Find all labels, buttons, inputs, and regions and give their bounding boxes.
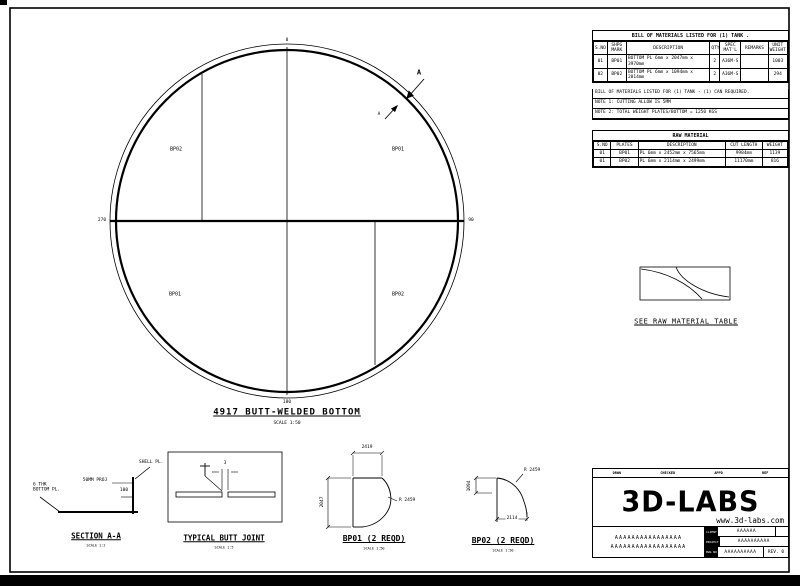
revision-badge: REV. 0 (763, 547, 788, 557)
title-block-approvals: DRWN CHECKED APPD REF (593, 469, 788, 478)
bom-cell: 1003 (768, 55, 787, 68)
field-row: DWG NO AAAAAAAAAA REV. 0 (705, 547, 788, 557)
bp02-title: BP02 (2 REQD) (472, 537, 535, 545)
bom-note: NOTE 2: TOTAL WEIGHT PLATES/BOTTOM = 125… (593, 109, 788, 119)
compass-label-90: 90 (468, 219, 473, 224)
dim-100: 100 (120, 489, 128, 494)
raw-cell: 11170mm (725, 158, 762, 166)
company-website: www.3d-labs.com (716, 516, 784, 525)
bom-note: NOTE 1: CUTTING ALLOW IS 5MM (593, 99, 788, 109)
title-block: DRWN CHECKED APPD REF 3D-LABS www.3d-lab… (592, 468, 789, 558)
bp01-scale: SCALE 1:50 (363, 547, 384, 551)
bp01-radius-dim: R 2459 (399, 499, 415, 504)
bottom-plate-label: 6 THK BOTTOM PL. (33, 483, 60, 494)
approval-label: CHECKED (660, 471, 675, 475)
field-value: AAAAAA (718, 527, 775, 536)
section-letter: A (378, 113, 381, 118)
bom-cell: 294 (768, 68, 787, 81)
title-block-fields: CLIENT AAAAAA PROJECT AAAAAAAAAA DWG NO … (705, 527, 788, 557)
section-aa-title: SECTION A-A (71, 532, 121, 540)
bp02-width-dim: 2114 (506, 517, 519, 522)
raw-cell: BP01 (611, 150, 638, 158)
raw-row: 01 BP01 PL 6mm x 2452mm x 7565mm 9984mm … (594, 150, 788, 158)
butt-joint-title: TYPICAL BUTT JOINT (183, 534, 264, 542)
field-label: PROJECT (705, 537, 720, 546)
bom-header: QTY (710, 42, 720, 55)
raw-cell: BP02 (611, 158, 638, 166)
bom-header-row: S.NO SHPG MARK DESCRIPTION QTY SPEC MAT'… (594, 42, 788, 55)
bp01-title: BP01 (2 REQD) (343, 535, 406, 543)
drawing-description: AAAAAAAAAAAAAAAA AAAAAAAAAAAAAAAAAA (593, 527, 705, 557)
raw-cell: PL 6mm x 2114mm x 2499mm (638, 158, 725, 166)
compass-label-0: 0 (286, 39, 289, 44)
bom-header: REMARKS (741, 42, 768, 55)
field-value: AAAAAAAAAA (720, 537, 788, 546)
drawing-sheet: 0 90 180 270 BP02 BP01 BP01 BP02 A A 491… (0, 0, 800, 586)
bom-table: S.NO SHPG MARK DESCRIPTION QTY SPEC MAT'… (593, 41, 788, 82)
bom-cell (741, 68, 768, 81)
plan-title: 4917 BUTT-WELDED BOTTOM (213, 409, 361, 418)
raw-cell: 01 (594, 150, 611, 158)
plan-scale: SCALE 1:50 (273, 422, 300, 427)
bp01-width-dim: 2419 (362, 446, 373, 451)
raw-material-table: S.NO PLATES DESCRIPTION CUT LENGTH WEIGH… (593, 141, 788, 167)
raw-header: CUT LENGTH (725, 142, 762, 150)
raw-header: S.NO (594, 142, 611, 150)
bom-note: BILL OF MATERIALS LISTED FOR (1) TANK - … (593, 89, 788, 99)
bom-cell: 01 (594, 55, 608, 68)
raw-material-caption: SEE RAW MATERIAL TABLE (634, 319, 738, 326)
approval-label: REF (762, 471, 768, 475)
company-logo: 3D-LABS (621, 486, 759, 519)
bom-cell: 2 (710, 55, 720, 68)
plate-label: BP02 (392, 293, 404, 298)
raw-cell: PL 6mm x 2452mm x 7565mm (638, 150, 725, 158)
compass-label-180: 180 (283, 401, 291, 406)
approval-label: DRWN (613, 471, 621, 475)
raw-row: 01 BP02 PL 6mm x 2114mm x 2499mm 11170mm… (594, 158, 788, 166)
title-block-bottom: AAAAAAAAAAAAAAAA AAAAAAAAAAAAAAAAAA CLIE… (593, 527, 788, 557)
plate-label: BP02 (170, 148, 182, 153)
butt-joint-scale: SCALE 1:5 (215, 546, 234, 550)
bom-table-panel: BILL OF MATERIALS LISTED FOR (1) TANK . … (592, 30, 789, 83)
bom-cell: A36M-S (720, 55, 741, 68)
bom-title: BILL OF MATERIALS LISTED FOR (1) TANK . (593, 31, 788, 41)
raw-header: WEIGHT (762, 142, 787, 150)
bom-cell: BOTTOM PL 6mm x 2047mm x 3970mm (626, 55, 709, 68)
bom-row: 02 BP02 BOTTOM PL 6mm x 1094mm x 2014mm … (594, 68, 788, 81)
bom-row: 01 BP01 BOTTOM PL 6mm x 2047mm x 3970mm … (594, 55, 788, 68)
bom-cell: BOTTOM PL 6mm x 1094mm x 2014mm (626, 68, 709, 81)
raw-material-panel: RAW MATERIAL S.NO PLATES DESCRIPTION CUT… (592, 130, 789, 168)
bp01-linework (326, 451, 397, 529)
bom-cell: 02 (594, 68, 608, 81)
raw-cell: 816 (762, 158, 787, 166)
bp02-linework (474, 474, 529, 522)
bom-header: SHPG MARK (607, 42, 626, 55)
field-row: CLIENT AAAAAA (705, 527, 788, 537)
bom-cell: BP02 (607, 68, 626, 81)
field-row: PROJECT AAAAAAAAAA (705, 537, 788, 547)
raw-header-row: S.NO PLATES DESCRIPTION CUT LENGTH WEIGH… (594, 142, 788, 150)
field-value: AAAAAAAAAA (718, 547, 763, 557)
bom-cell: A36M-S (720, 68, 741, 81)
bom-header: DESCRIPTION (626, 42, 709, 55)
raw-header: PLATES (611, 142, 638, 150)
bom-header: UNIT WEIGHT (768, 42, 787, 55)
bottom-edge-bar (0, 575, 800, 586)
field-label: DWG NO (705, 547, 718, 557)
gap-dim: 3 (224, 462, 227, 467)
raw-material-sketch (640, 267, 730, 300)
bp02-radius-dim: R 2459 (524, 469, 540, 474)
bom-header: SPEC MAT'L (720, 42, 741, 55)
bp01-height-dim: 2047 (321, 497, 326, 508)
raw-cell: 1139 (762, 150, 787, 158)
raw-cell: 9984mm (725, 150, 762, 158)
field-label: CLIENT (705, 527, 718, 536)
plate-label: BP01 (392, 148, 404, 153)
projection-label: 50MM PROJ (83, 479, 107, 484)
raw-cell: 01 (594, 158, 611, 166)
bp02-height-dim: 1094 (468, 481, 473, 492)
title-block-logo-area: 3D-LABS www.3d-labs.com (593, 478, 788, 527)
bom-cell (741, 55, 768, 68)
bom-cell: BP01 (607, 55, 626, 68)
corner-mark (0, 0, 7, 5)
plate-label: BP01 (169, 293, 181, 298)
approval-label: APPD (714, 471, 722, 475)
description-line: AAAAAAAAAAAAAAAAAA (611, 544, 687, 550)
section-letter: A (417, 70, 421, 77)
bp02-scale: SCALE 1:50 (492, 549, 513, 553)
shell-plate-label: SHELL PL. (139, 461, 163, 466)
bom-cell: 2 (710, 68, 720, 81)
compass-label-270: 270 (98, 219, 106, 224)
plan-linework (110, 44, 464, 398)
raw-header: DESCRIPTION (638, 142, 725, 150)
bom-notes-panel: BILL OF MATERIALS LISTED FOR (1) TANK - … (592, 89, 789, 120)
bom-header: S.NO (594, 42, 608, 55)
description-line: AAAAAAAAAAAAAAAA (615, 535, 682, 541)
field-end-cell (775, 527, 788, 536)
raw-material-title: RAW MATERIAL (593, 131, 788, 141)
section-aa-scale: SCALE 1:2 (87, 544, 106, 548)
